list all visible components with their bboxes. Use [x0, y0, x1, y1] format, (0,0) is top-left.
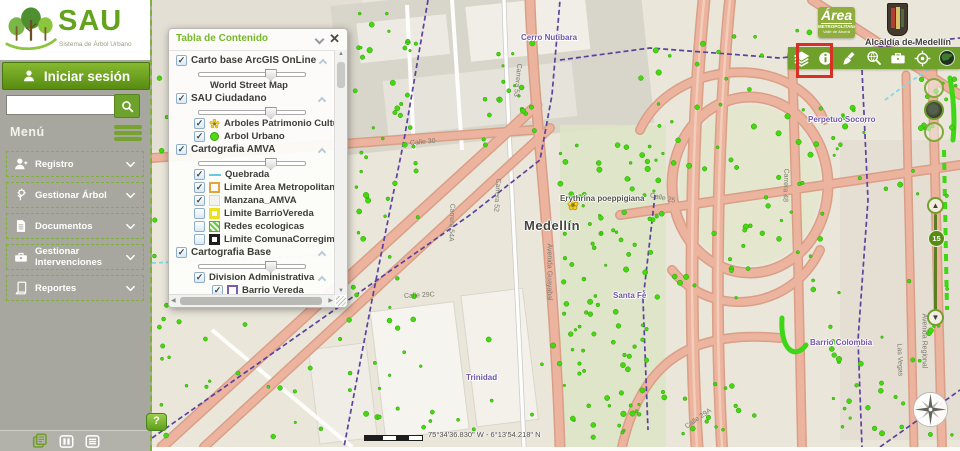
toc-row-arboles-patrimonio-cultural[interactable]: ✓Arboles Patrimonio Cultural — [174, 117, 335, 130]
list-icon — [85, 434, 100, 449]
search-globe-icon — [866, 50, 882, 66]
resize-handle[interactable] — [336, 296, 346, 306]
sidebar: SAU Sistema de Árbol Urbano Iniciar sesi… — [0, 0, 152, 451]
layer-label: Limite ComunaCorregimiento — [224, 234, 335, 245]
layer-opacity-slider[interactable] — [174, 105, 335, 117]
widget-circle-button-1[interactable] — [924, 78, 944, 98]
toc-row-carto-base-arcgis-online[interactable]: ✓Carto base ArcGIS OnLine — [174, 54, 335, 67]
login-label: Iniciar sesión — [44, 69, 130, 84]
toc-title: Tabla de Contenido — [176, 33, 268, 44]
app-title: SAU — [58, 5, 122, 38]
layer-label: Quebrada — [225, 169, 269, 180]
layer-checkbox[interactable]: ✓ — [176, 93, 187, 104]
collapse-chevron-icon[interactable] — [319, 147, 325, 153]
bottom-strip — [152, 447, 960, 451]
widget-circle-button-3[interactable] — [924, 122, 944, 142]
layer-label: Cartografia Base — [191, 247, 271, 258]
sidebar-item-label: Gestionar Intervenciones — [35, 246, 111, 268]
layer-checkbox[interactable]: ✓ — [194, 169, 205, 180]
sidebar-footer — [0, 430, 150, 451]
broom-icon — [842, 51, 857, 66]
search-globe-tool-button[interactable] — [863, 47, 885, 69]
table-of-contents-panel: Tabla de Contenido ✕ ✓Carto base ArcGIS … — [168, 28, 348, 308]
toc-row-limite-area-metropolitana[interactable]: ✓Limite Area Metropolitana — [174, 181, 335, 194]
chevron-down-icon — [125, 221, 136, 232]
layer-label: Limite Area Metropolitana — [224, 182, 335, 193]
layer-checkbox[interactable]: ✓ — [194, 182, 205, 193]
green-grid-swatch — [209, 221, 220, 232]
toc-row-division-administrativa[interactable]: ✓Division Administrativa — [174, 271, 335, 284]
pages-icon — [32, 433, 48, 449]
area-metropolitana-logo: Área METROPOLITANA Valle de Aburrá — [818, 7, 855, 38]
layer-checkbox[interactable]: ✓ — [176, 144, 187, 155]
layer-checkbox[interactable]: ✓ — [176, 247, 187, 258]
toc-row-limite-comunacorregimiento[interactable]: Limite ComunaCorregimiento — [174, 233, 335, 246]
layer-checkbox[interactable] — [194, 221, 205, 232]
layer-label: Redes ecologicas — [224, 221, 304, 232]
menu-title: Menú — [10, 125, 45, 139]
layer-checkbox[interactable] — [194, 234, 205, 245]
compass-rose-icon — [912, 391, 949, 428]
layer-checkbox[interactable]: ✓ — [194, 131, 205, 142]
chevron-down-icon — [125, 159, 136, 170]
orange-dashed-swatch — [209, 182, 220, 193]
sidebar-menu: RegistroGestionar ÁrbolDocumentosGestion… — [0, 146, 150, 301]
trees-logo-icon — [4, 6, 58, 52]
document-icon — [14, 219, 28, 233]
sidebar-item-reportes[interactable]: Reportes — [6, 275, 144, 301]
locate-icon — [914, 50, 931, 67]
black-swatch — [209, 234, 220, 245]
layer-label: SAU Ciudadano — [191, 93, 267, 104]
layer-opacity-slider[interactable] — [174, 67, 335, 79]
toc-row-quebrada[interactable]: ✓Quebrada — [174, 168, 335, 181]
zoom-level-badge[interactable]: 15 — [928, 230, 945, 247]
layer-opacity-slider[interactable] — [174, 156, 335, 168]
layer-label: Manzana_AMVA — [224, 195, 297, 206]
sidebar-item-label: Registro — [35, 159, 74, 170]
layer-checkbox[interactable]: ✓ — [194, 195, 205, 206]
layer-checkbox[interactable]: ✓ — [176, 55, 187, 66]
toc-row-manzana-amva[interactable]: ✓Manzana_AMVA — [174, 194, 335, 207]
sidebar-item-label: Reportes — [35, 283, 76, 294]
sidebar-item-gestionar-rbol[interactable]: Gestionar Árbol — [6, 182, 144, 208]
toc-row-cartografia-amva[interactable]: ✓Cartografia AMVA — [174, 143, 335, 156]
zoom-out-button[interactable]: ▼ — [927, 309, 944, 326]
layer-label: Limite BarrioVereda — [224, 208, 314, 219]
area-logo-script: Área — [821, 8, 852, 24]
briefcase-icon — [890, 50, 906, 66]
chevron-down-icon — [125, 283, 136, 294]
scrollbar-thumb[interactable] — [180, 297, 322, 305]
highlight-box — [796, 43, 833, 78]
toc-row-limite-barriovereda[interactable]: Limite BarrioVereda — [174, 207, 335, 220]
user-add-icon — [14, 157, 28, 171]
layer-label: Cartografia AMVA — [191, 144, 275, 155]
sidebar-item-registro[interactable]: Registro — [6, 151, 144, 177]
login-button[interactable]: Iniciar sesión — [2, 62, 150, 90]
collapse-chevron-icon[interactable] — [319, 96, 325, 102]
zoom-slider-track[interactable] — [934, 214, 937, 310]
search-input[interactable] — [6, 95, 116, 115]
toc-header: Tabla de Contenido ✕ — [169, 29, 347, 51]
layer-opacity-slider[interactable] — [174, 259, 335, 271]
globe-icon — [938, 49, 956, 67]
layer-label: Division Administrativa — [209, 272, 314, 283]
scrollbar-thumb[interactable] — [337, 62, 345, 88]
pages-view-button[interactable] — [32, 433, 48, 449]
hamburger-icon[interactable] — [114, 125, 142, 143]
toc-row-world-street-map[interactable]: World Street Map — [174, 79, 335, 92]
list-view-button[interactable] — [85, 434, 100, 449]
layer-checkbox[interactable]: ✓ — [194, 272, 205, 283]
search-button[interactable] — [114, 94, 140, 118]
collapse-chevron-icon[interactable] — [319, 275, 325, 281]
toc-vertical-scrollbar[interactable]: ▲ ▼ — [334, 50, 347, 295]
chevron-down-icon[interactable] — [316, 36, 323, 43]
locate-tool-button[interactable] — [912, 47, 934, 69]
app-tagline: Sistema de Árbol Urbano — [59, 41, 132, 48]
person-icon — [22, 69, 36, 83]
blue-line-swatch — [209, 174, 221, 176]
toc-row-cartografia-base[interactable]: ✓Cartografia Base — [174, 246, 335, 259]
layer-label: World Street Map — [210, 80, 288, 91]
sidebar-item-label: Gestionar Árbol — [35, 190, 107, 201]
collapse-chevron-icon[interactable] — [320, 58, 326, 64]
columns-view-button[interactable] — [59, 434, 74, 449]
columns-icon — [59, 434, 74, 449]
layer-label: Arboles Patrimonio Cultural — [224, 118, 335, 129]
layer-label: Arbol Urbano — [224, 131, 285, 142]
layer-checkbox[interactable] — [194, 208, 205, 219]
zoom-in-button[interactable]: ▲ — [927, 197, 944, 214]
yellow-swatch — [209, 208, 220, 219]
help-bubble-button[interactable]: ? — [146, 413, 167, 431]
green-dot-swatch — [209, 131, 220, 142]
chevron-down-icon — [125, 252, 136, 263]
magnifier-icon — [121, 100, 134, 113]
map-scale-bar — [364, 435, 423, 441]
layer-checkbox[interactable]: ✓ — [194, 118, 205, 129]
toolbox-icon — [14, 250, 28, 264]
sidebar-item-gestionar-intervenciones[interactable]: Gestionar Intervenciones — [6, 244, 144, 270]
app-logo: SAU Sistema de Árbol Urbano — [0, 0, 150, 60]
tree-settings-icon — [14, 188, 28, 202]
collapse-chevron-icon[interactable] — [319, 250, 325, 256]
close-icon[interactable]: ✕ — [329, 31, 340, 47]
menu-header: Menú — [0, 120, 150, 146]
briefcase-tool-button[interactable] — [887, 47, 909, 69]
globe-tool-button[interactable] — [936, 47, 958, 69]
toc-horizontal-scrollbar[interactable]: ◀ ▶ — [169, 294, 335, 307]
report-pages-icon — [14, 281, 28, 295]
heritage-flower-swatch — [209, 118, 220, 129]
widget-circle-button-2[interactable] — [924, 100, 944, 120]
broom-tool-button[interactable] — [839, 47, 861, 69]
alcaldia-label: Alcaldía de Medellín — [852, 37, 960, 47]
sidebar-item-label: Documentos — [35, 221, 93, 232]
area-logo-line3: Valle de Aburrá — [818, 29, 855, 34]
toc-row-redes-ecologicas[interactable]: Redes ecologicas — [174, 220, 335, 233]
plain-swatch — [209, 195, 220, 206]
chevron-down-icon — [125, 190, 136, 201]
toc-body: ✓Carto base ArcGIS OnLineWorld Street Ma… — [169, 50, 335, 295]
sidebar-item-documentos[interactable]: Documentos — [6, 213, 144, 239]
alcaldia-shield-logo — [887, 3, 908, 36]
toc-row-arbol-urbano[interactable]: ✓Arbol Urbano — [174, 130, 335, 143]
app-window: MedellínErythrina poeppigianaCerro Nutib… — [0, 0, 960, 451]
cursor-coordinates: 75°34'36.830" W - 6°13'54.218" N — [428, 430, 541, 439]
layer-label: Carto base ArcGIS OnLine — [191, 55, 316, 66]
toc-row-sau-ciudadano[interactable]: ✓SAU Ciudadano — [174, 92, 335, 105]
